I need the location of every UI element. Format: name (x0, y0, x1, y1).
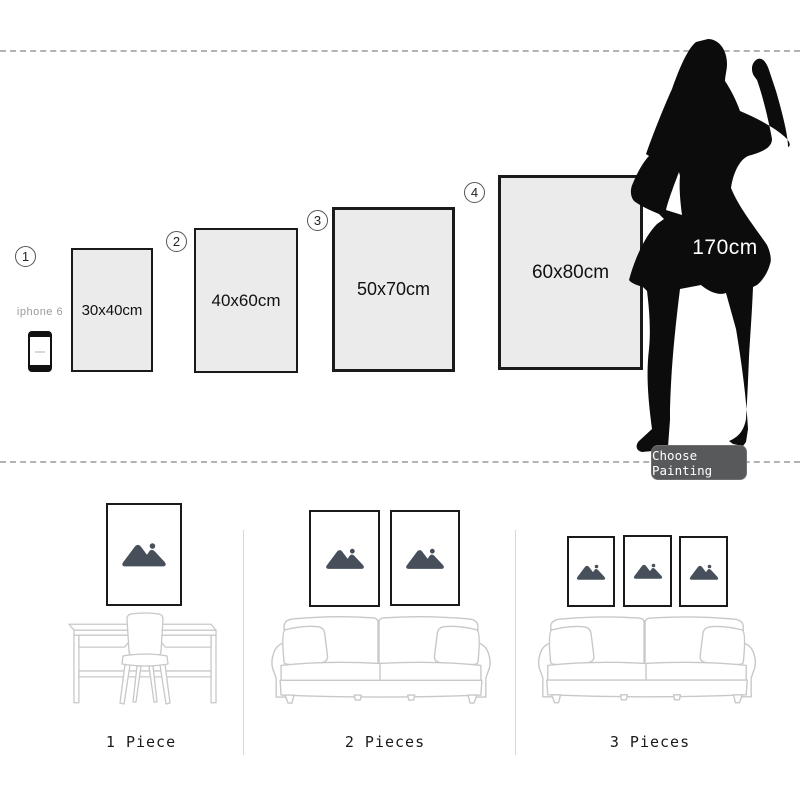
step-number-1: 1 (15, 246, 36, 267)
size-guide-infographic: 1 2 3 4 iphone 6 30x40cm 40x60cm 50x70cm… (0, 0, 800, 800)
artwork-frame (623, 535, 672, 607)
size-label-30x40: 30x40cm (82, 302, 143, 319)
step-number-2-text: 2 (173, 234, 180, 249)
size-label-40x60: 40x60cm (212, 291, 281, 311)
artwork-frame (106, 503, 182, 606)
phone-screen (30, 337, 50, 365)
step-number-3: 3 (307, 210, 328, 231)
artwork-frame (390, 510, 460, 606)
artwork-frame (679, 536, 728, 607)
phone-bottom-bezel (30, 365, 50, 370)
image-placeholder-icon (325, 547, 365, 570)
divider-1 (243, 530, 244, 755)
iphone-icon (28, 331, 52, 372)
size-label-60x80: 60x80cm (532, 262, 609, 284)
choose-painting-button[interactable]: Choose Painting (651, 445, 747, 480)
artwork-frame (309, 510, 380, 607)
size-option-frame-50x70: 50x70cm (332, 207, 455, 372)
person-height-label: 170cm (688, 236, 762, 260)
size-label-50x70: 50x70cm (357, 279, 430, 300)
step-number-4: 4 (464, 182, 485, 203)
step-number-1-text: 1 (22, 249, 29, 264)
image-placeholder-icon (405, 547, 445, 570)
image-placeholder-icon (633, 562, 663, 580)
image-placeholder-icon (576, 563, 606, 581)
image-placeholder-icon (121, 541, 167, 568)
size-option-frame-40x60: 40x60cm (194, 228, 298, 373)
artwork-frame (567, 536, 615, 607)
chair-illustration (116, 611, 174, 707)
step-number-3-text: 3 (314, 213, 321, 228)
image-placeholder-icon (689, 563, 719, 581)
phone-screen-text (35, 351, 45, 353)
room-label-2-pieces: 2 Pieces (300, 733, 470, 751)
room-label-3-pieces: 3 Pieces (565, 733, 735, 751)
sofa-illustration (534, 613, 760, 704)
size-option-frame-30x40: 30x40cm (71, 248, 153, 372)
divider-2 (515, 530, 516, 755)
sofa-illustration (267, 613, 495, 704)
phone-label: iphone 6 (16, 306, 64, 318)
step-number-2: 2 (166, 231, 187, 252)
room-label-1-piece: 1 Piece (56, 733, 226, 751)
step-number-4-text: 4 (471, 185, 478, 200)
